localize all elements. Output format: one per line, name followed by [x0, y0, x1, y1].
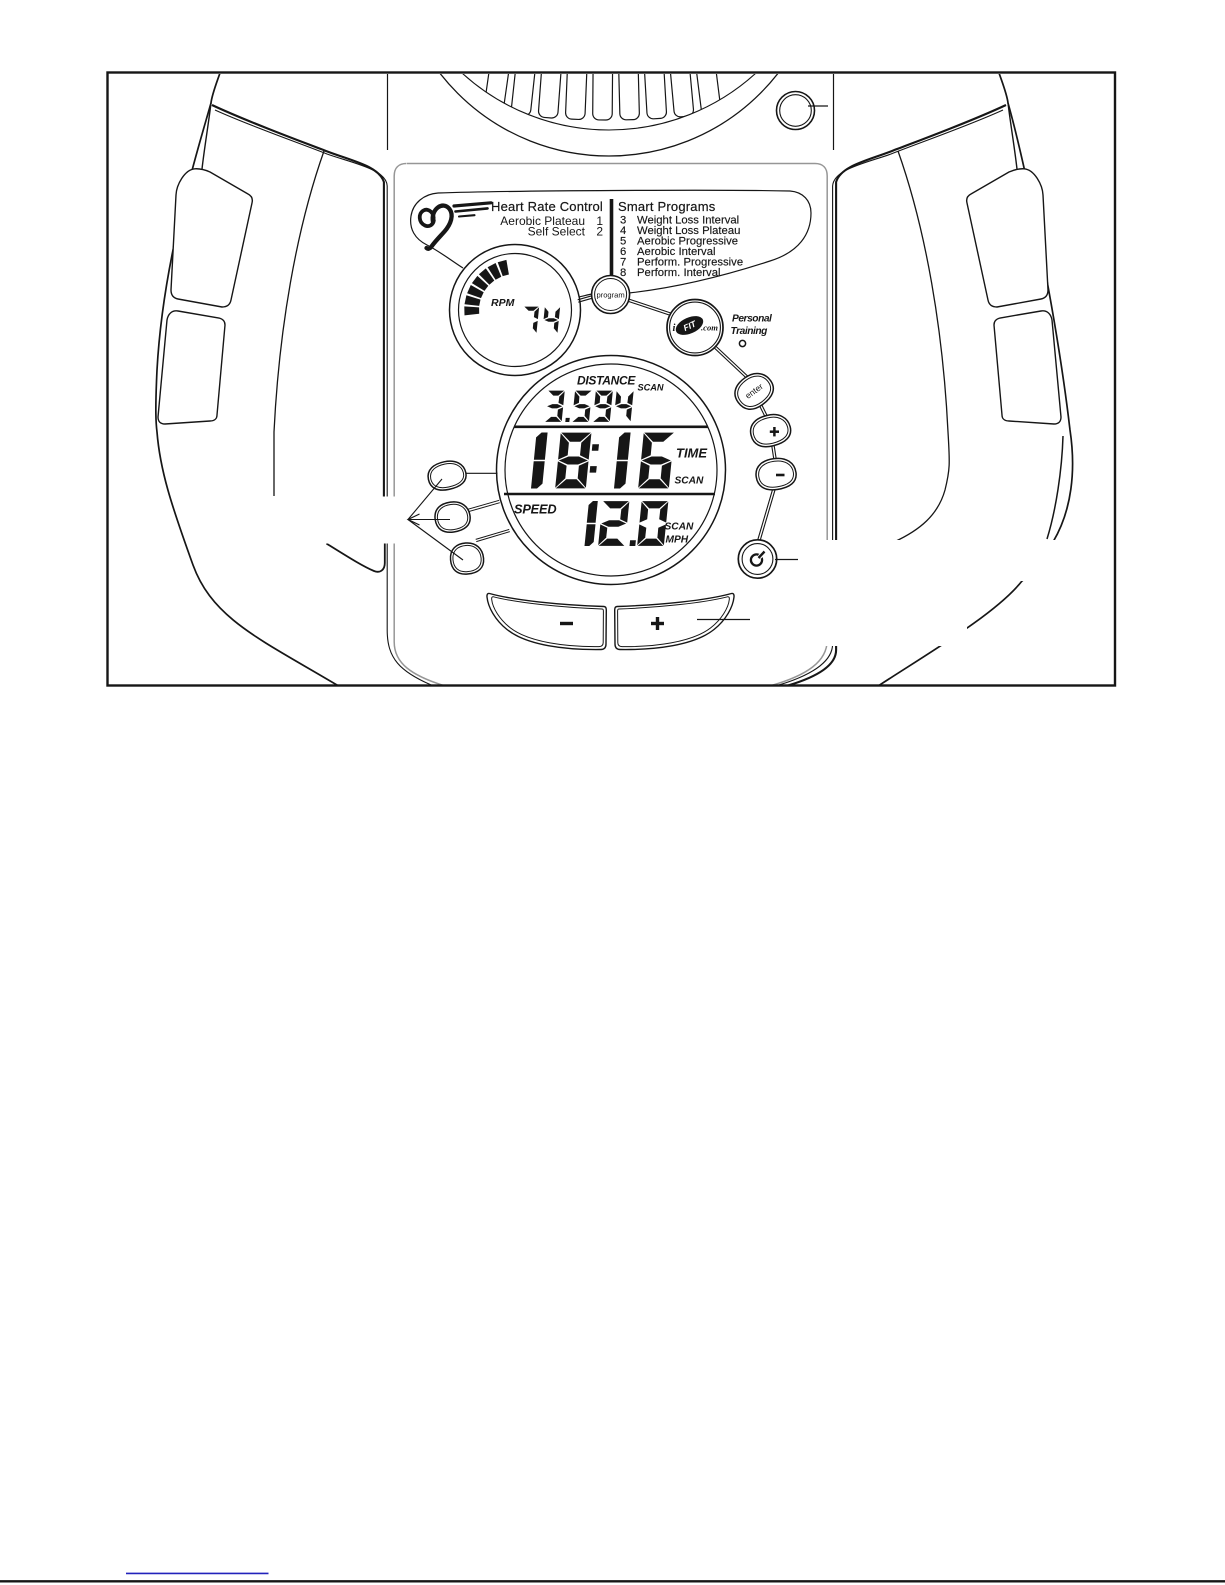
svg-text:Heart Rate Control: Heart Rate Control	[491, 199, 603, 214]
svg-text:Personal: Personal	[732, 314, 772, 325]
svg-text:8: 8	[620, 267, 626, 279]
svg-text:2: 2	[596, 225, 603, 239]
svg-text:TIME: TIME	[676, 446, 707, 461]
svg-text:SPEED: SPEED	[514, 502, 556, 517]
svg-text:SCAN: SCAN	[638, 383, 664, 393]
svg-text:Smart Programs: Smart Programs	[618, 199, 716, 214]
svg-text:Training: Training	[731, 326, 769, 337]
svg-text:RPM: RPM	[491, 297, 515, 309]
svg-text:program: program	[596, 291, 624, 300]
svg-text:.com: .com	[701, 323, 718, 333]
svg-text:MPH: MPH	[666, 535, 689, 546]
svg-text:DISTANCE: DISTANCE	[577, 374, 636, 388]
svg-text:SCAN: SCAN	[665, 521, 695, 532]
svg-text:i: i	[673, 323, 676, 334]
svg-text:Perform. Interval: Perform. Interval	[637, 267, 721, 279]
svg-text:SCAN: SCAN	[675, 476, 705, 487]
svg-text:Self Select: Self Select	[528, 225, 586, 239]
